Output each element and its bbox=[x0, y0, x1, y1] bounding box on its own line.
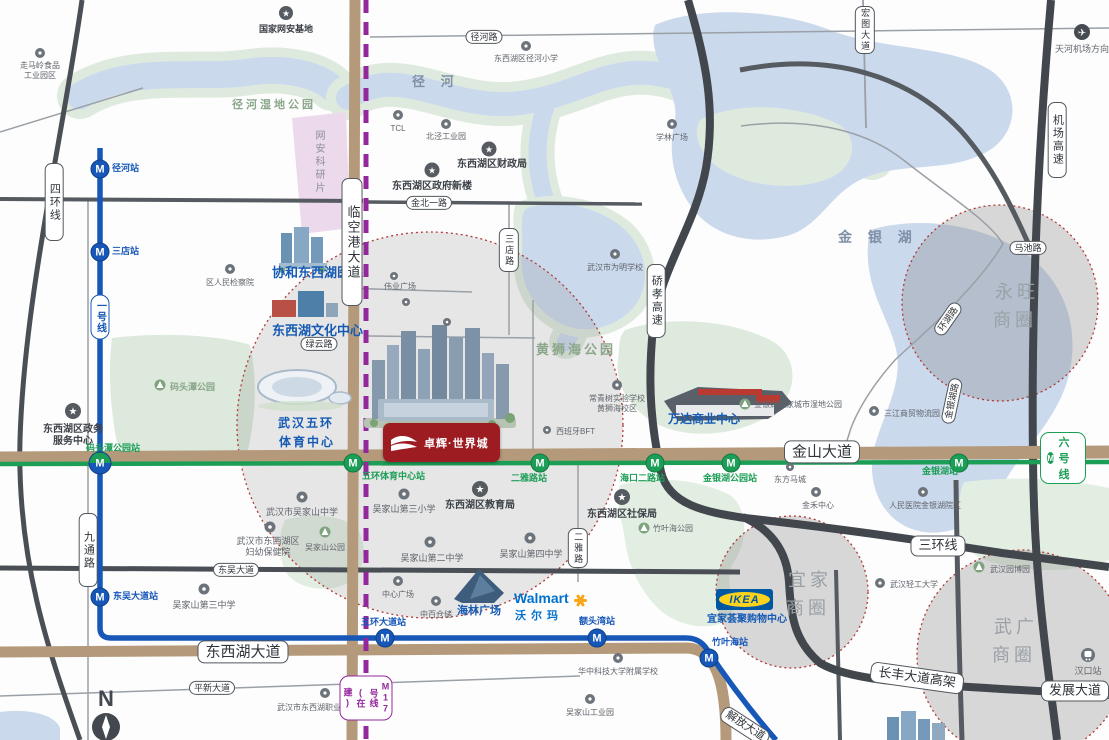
poi-no3-primary: 吴家山第三小学 bbox=[372, 504, 435, 515]
poi-beijing-industry: 北泾工业园 bbox=[426, 132, 466, 142]
poi-no4-middle: 吴家山第四中学 bbox=[499, 549, 562, 560]
poi-qinggong-univ: 武汉轻工大学 bbox=[890, 580, 938, 590]
project-logo: 卓辉·世界城 bbox=[383, 423, 500, 462]
metro-line1-badge: 一号线 bbox=[91, 295, 110, 340]
station-label-dongwu: 东吴大道站 bbox=[113, 591, 158, 602]
station-label-etouwan: 额头湾站 bbox=[579, 616, 615, 627]
gov-star-icon: ★ bbox=[614, 489, 630, 505]
road-linkonggang-dadao bbox=[352, 0, 355, 740]
road-sign-sanhuanxian: 三环线 bbox=[910, 536, 965, 557]
road-sign-sandian-lu: 三店路 bbox=[499, 228, 519, 272]
poi-zoumaling: 走马岭食品工业园区 bbox=[20, 61, 60, 80]
station-label-haikou: 海口二路站 bbox=[620, 473, 665, 484]
matoutan-park-area bbox=[110, 335, 255, 455]
road-sign-jinshan-dadao: 金山大道 bbox=[784, 440, 860, 463]
road-sign-jichang-gaosu: 机场高速 bbox=[1048, 102, 1067, 178]
svg-text:★: ★ bbox=[282, 9, 290, 19]
water-southwest bbox=[0, 711, 60, 740]
metro-station-jinyinhu-gongyuan: M bbox=[722, 454, 741, 473]
poi-wujiashan-park: 吴家山公园 bbox=[305, 543, 345, 553]
area-label-jinghe-river: 径 河 bbox=[412, 74, 460, 90]
svg-text:★: ★ bbox=[485, 145, 493, 155]
metro-station-sandian: M bbox=[91, 243, 110, 262]
map-canvas: ★ ★ ★ ★ ★ ★ ✈ 四环线 临空港大道 机场高速 硚孝高速 九通路 三店… bbox=[0, 0, 1109, 740]
station-label-jinghe: 径河站 bbox=[112, 163, 139, 174]
circle-label-yongwang-2: 商圈 bbox=[993, 310, 1037, 332]
svg-text:✈: ✈ bbox=[1078, 28, 1086, 39]
svg-text:★: ★ bbox=[428, 166, 436, 176]
circle-label-wuguang-2: 商圈 bbox=[992, 645, 1036, 667]
compass-north-label: N bbox=[98, 686, 114, 712]
road-sign-dongwu-dadao: 东吴大道 bbox=[213, 563, 259, 577]
road-sign-qiaoxiao-gaosu: 硚孝高速 bbox=[647, 264, 666, 338]
poi-wujiashan-middle: 武汉市吴家山中学 bbox=[266, 507, 338, 518]
area-label-jinyin-lake: 金 银 湖 bbox=[838, 229, 918, 246]
poi-wujiashan-industry: 吴家山工业园 bbox=[566, 708, 614, 718]
line6-m-icon: M bbox=[1047, 452, 1054, 464]
area-label-matoutan-park: 码头潭公园 bbox=[170, 382, 215, 393]
svg-text:★: ★ bbox=[69, 407, 78, 418]
poi-no2-middle: 吴家山第二中学 bbox=[400, 553, 463, 564]
project-wave-icon bbox=[389, 432, 419, 454]
poi-caizhengju: 东西湖区财政局 bbox=[457, 159, 527, 171]
gov-star-icon: ★ bbox=[425, 163, 440, 178]
station-label-jinyinhu: 金银湖站 bbox=[922, 466, 958, 477]
walmart-logo-cn: 沃尔玛 bbox=[515, 607, 563, 623]
svg-text:★: ★ bbox=[618, 493, 627, 504]
road-sign-hongtu-dadao: 宏图大道 bbox=[855, 6, 875, 54]
gov-star-icon: ★ bbox=[482, 142, 497, 157]
poi-spain-bft: 西班牙BFT bbox=[556, 427, 595, 437]
station-label-jinyinhu-gongyuan: 金银湖公园站 bbox=[703, 473, 757, 484]
line17-m-icon: M bbox=[381, 682, 391, 693]
project-logo-name: 卓辉·世界城 bbox=[424, 435, 489, 451]
road-sign-machi-lu: 马池路 bbox=[1009, 241, 1046, 255]
station-label-matoutan: 码头潭公园站 bbox=[86, 443, 140, 454]
metro-station-zhuyehai: M bbox=[700, 649, 719, 668]
poi-zhengfu-xinlou: 东西湖区政府新楼 bbox=[392, 181, 472, 193]
area-label-huangshihai-park: 黄狮海公园 bbox=[536, 342, 616, 358]
poi-xuelin: 学林广场 bbox=[656, 133, 688, 143]
metro-line17-badge: M17号线(在建) bbox=[340, 676, 393, 721]
metro-line6-badge: M 六号线 bbox=[1040, 432, 1086, 484]
poi-huazhong-school: 华中科技大学附属学校 bbox=[578, 667, 658, 677]
road-dongwu-dadao bbox=[0, 568, 740, 572]
walmart-spark-icon bbox=[574, 599, 587, 602]
poi-tianhe-airport: 天河机场方向 bbox=[1055, 44, 1109, 55]
landmark-hailin: 海林广场 bbox=[457, 605, 501, 618]
walmart-logo-text: Walmart bbox=[514, 590, 569, 606]
airport-plane-icon: ✈ bbox=[1074, 24, 1090, 40]
poi-zhuyehai-park: 竹叶海公园 bbox=[653, 524, 693, 534]
gov-star-icon: ★ bbox=[472, 481, 488, 497]
metro-station-haikou: M bbox=[646, 454, 665, 473]
poi-changqing-school: 常青树实验学校黄狮海校区 bbox=[589, 394, 645, 413]
station-label-wuhuan-tiyu: 五环体育中心站 bbox=[362, 471, 425, 482]
area-label-jinghe-wetland: 径河湿地公园 bbox=[232, 99, 316, 112]
poi-weiye-plaza: 伟业广场 bbox=[384, 282, 416, 292]
poi-shidi-park: 金银湖国家城市湿地公园 bbox=[754, 400, 842, 410]
poi-jinhe-center: 金禾中心 bbox=[802, 501, 834, 511]
poi-yuanboyuan: 武汉园博园 bbox=[990, 565, 1030, 575]
poi-zhongbai: 中百仓储 bbox=[420, 610, 452, 620]
poi-jiaoyuju: 东西湖区教育局 bbox=[445, 500, 515, 512]
poi-fuyou-hospital: 武汉市东西湖区妇幼保健院 bbox=[236, 536, 299, 558]
poi-jinghe-primary: 东西湖区径河小学 bbox=[494, 54, 558, 64]
gov-star-icon: ★ bbox=[279, 6, 293, 20]
road-sign-erya-lu: 二雅路 bbox=[568, 528, 588, 568]
poi-tcl: TCL bbox=[390, 124, 405, 134]
metro-station-wuhuan-tiyu: M bbox=[344, 454, 363, 473]
station-label-erya: 二雅路站 bbox=[511, 473, 547, 484]
poi-jianchayuan: 区人民检察院 bbox=[206, 278, 254, 288]
metro-station-jinghe: M bbox=[91, 160, 110, 179]
poi-no3-middle: 吴家山第三中学 bbox=[172, 600, 235, 611]
line17-badge-label: 17号线(在建) bbox=[343, 688, 391, 715]
metro-station-dongwu: M bbox=[91, 588, 110, 607]
ikea-logo-text: IKEA bbox=[729, 594, 759, 606]
circle-label-wuguang-1: 武广 bbox=[994, 617, 1038, 639]
poi-wangan-base: 国家网安基地 bbox=[259, 24, 313, 35]
ikea-logo: IKEA bbox=[716, 589, 773, 610]
landmark-sports-center-2: 体育中心 bbox=[279, 435, 335, 449]
landmark-wanda: 万达商业中心 bbox=[668, 412, 740, 426]
landmark-ikea-mall: 宜家荟聚购物中心 bbox=[707, 614, 787, 626]
road-sign-lvyun-lu: 绿云路 bbox=[300, 337, 337, 351]
map-base-art: ★ ★ ★ ★ ★ ★ ✈ bbox=[0, 0, 1109, 740]
station-label-wuhuan-dadao: 五环大道站 bbox=[361, 617, 406, 628]
poi-dongfang-macheng: 东方马城 bbox=[774, 475, 806, 485]
gov-star-icon: ★ bbox=[65, 403, 81, 419]
poi-hankou-station: 汉口站 bbox=[1074, 666, 1101, 677]
poi-weiming-school: 武汉市为明学校 bbox=[587, 263, 643, 273]
poi-sanjiang: 三江商贸物流园 bbox=[884, 409, 940, 419]
road-sign-pingxin-dadao: 平新大道 bbox=[189, 681, 235, 695]
area-label-wangan-zone: 网安科研片 bbox=[312, 130, 324, 195]
station-label-zhuyehai: 竹叶海站 bbox=[712, 637, 748, 648]
train-station-icon bbox=[1081, 648, 1095, 662]
road-sign-sihuanxian: 四环线 bbox=[45, 163, 64, 241]
metro-station-matoutan-interchange: M bbox=[89, 452, 112, 475]
metro-line6 bbox=[0, 462, 1109, 464]
poi-zhongxin-plaza: 中心广场 bbox=[382, 590, 414, 600]
compass-icon bbox=[92, 713, 120, 740]
road-sign-jinghe-lu: 径河路 bbox=[465, 30, 502, 44]
road-sign-jiutong-lu: 九通路 bbox=[79, 513, 98, 587]
landmark-sports-center-1: 武汉五环 bbox=[278, 416, 334, 430]
metro-station-etouwan: M bbox=[588, 629, 607, 648]
circle-label-ikea-1: 宜家 bbox=[788, 570, 832, 592]
poi-shebaoju: 东西湖区社保局 bbox=[587, 509, 657, 521]
road-sign-linkonggang-dadao: 临空港大道 bbox=[342, 178, 363, 306]
poi-renmin-hospital: 人民医院金银湖院区 bbox=[889, 501, 961, 511]
ikea-logo-oval: IKEA bbox=[719, 592, 770, 607]
station-label-sandian: 三店站 bbox=[112, 246, 139, 257]
road-jinshan-dadao bbox=[0, 452, 1109, 458]
road-sign-jinbei-yilu: 金北一路 bbox=[406, 196, 452, 210]
metro-station-erya: M bbox=[531, 454, 550, 473]
wetland-northwest bbox=[80, 70, 332, 96]
road-sign-fazhan-dadao: 发展大道 bbox=[1041, 681, 1109, 702]
svg-text:★: ★ bbox=[476, 485, 485, 496]
circle-label-yongwang-1: 永旺 bbox=[995, 282, 1039, 304]
metro-station-wuhuan-dadao: M bbox=[376, 629, 395, 648]
line6-badge-label: 六号线 bbox=[1058, 434, 1079, 482]
road-sign-dongxihu-dadao: 东西湖大道 bbox=[197, 640, 288, 663]
circle-label-ikea-2: 商圈 bbox=[786, 598, 830, 620]
